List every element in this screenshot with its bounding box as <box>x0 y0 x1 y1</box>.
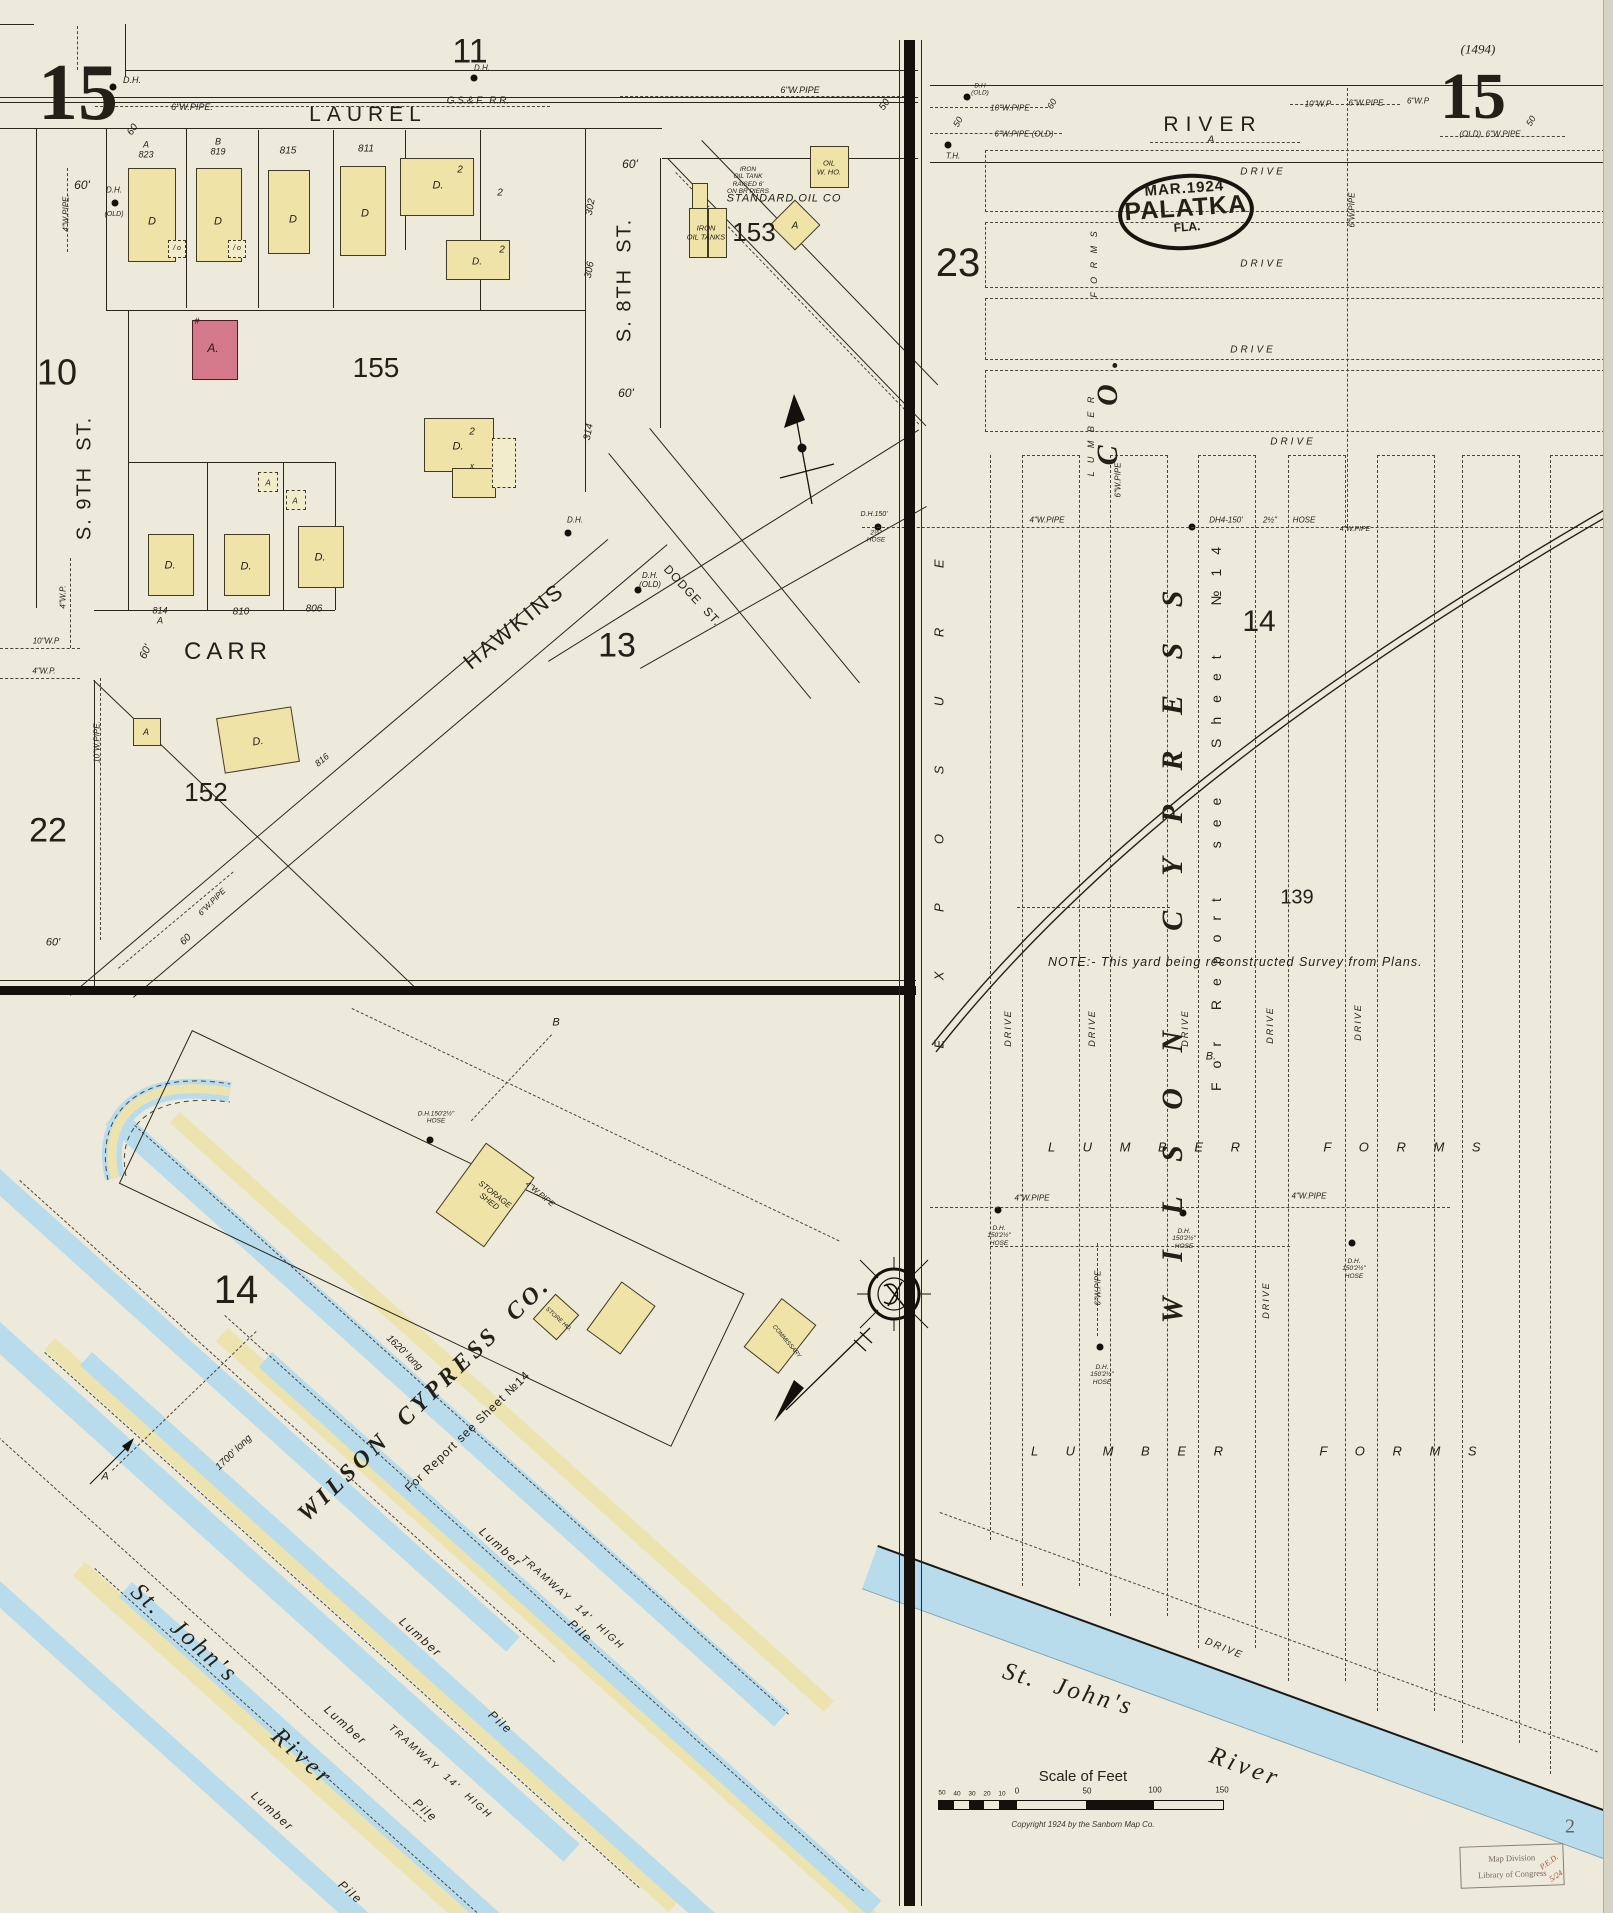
pipe-label: 6"W.PIPE (OLD) <box>995 129 1054 138</box>
street-line-s8th <box>660 158 661 428</box>
water-pipe <box>118 872 234 969</box>
street-s8th: S. 8TH ST. <box>614 218 637 342</box>
survey-line <box>471 1034 552 1121</box>
yard-row <box>985 150 1605 212</box>
house-number: 302 <box>584 198 598 216</box>
scale-segment <box>1016 1801 1086 1809</box>
double-hydrant <box>112 200 119 207</box>
width-marker: 50 <box>877 97 893 113</box>
scale-segment <box>939 1801 954 1809</box>
lumber-forms-vertical: F O R M S <box>1089 228 1099 297</box>
street-laurel: LAUREL <box>309 103 427 127</box>
standard-oil-label: STANDARD OIL CO <box>727 193 842 206</box>
scan-edge <box>1603 0 1613 1913</box>
panel-divider-line <box>0 980 916 981</box>
block-line <box>125 70 918 71</box>
point-marker: B. <box>1206 1051 1216 1064</box>
hydrant-label: D.H (OLD) <box>971 83 989 98</box>
pipe-label: 6"W.PIPE <box>1113 463 1122 498</box>
pile-outline <box>224 1315 864 1891</box>
lumber-forms-row: L U M B E R <box>1048 1141 1252 1156</box>
house-number: A 823 <box>138 140 153 161</box>
block-line <box>106 310 585 311</box>
building-label: A <box>265 478 270 487</box>
dimension: 1700' long <box>214 1433 255 1473</box>
scale-tick: 50 <box>938 1789 945 1796</box>
railroad-label: G.S.& F. R.R. <box>447 95 510 107</box>
dwelling-wing <box>452 468 496 498</box>
house-number: 314 <box>582 423 596 441</box>
water-pipe <box>100 678 101 940</box>
survey-line <box>1150 142 1300 143</box>
house-number: 810 <box>233 606 250 618</box>
hydrant-label: T.H. <box>946 151 960 160</box>
panel-divider-line <box>921 40 922 1906</box>
pipe-label: (OLD) 6"W.PIPE <box>1459 129 1520 138</box>
width-marker: 50 <box>951 115 965 129</box>
house-number: 815 <box>280 145 297 157</box>
pipe-label: 4"W.P. <box>32 666 55 675</box>
lumber-forms-row: L U M B E R <box>1031 1445 1235 1460</box>
scale-tick: 30 <box>968 1790 975 1797</box>
water-pipe <box>620 96 915 97</box>
north-arrow-icon <box>778 392 842 512</box>
hydrant-label: D.H.150' <box>860 511 887 519</box>
pipe-label: 4"W.PIPE <box>1292 1191 1327 1200</box>
sheet-number-left: 15 <box>38 47 118 139</box>
scale-segment <box>999 1801 1016 1809</box>
building-label: D. <box>252 735 265 749</box>
drive-label: DRIVE <box>1087 1009 1097 1047</box>
pipe-label: 10"W.PIPE <box>990 103 1029 112</box>
outbuilding-label: / o <box>173 245 181 253</box>
hydrant-label: D.H. (OLD) <box>639 571 661 589</box>
yard-row <box>985 298 1605 360</box>
pipe-label: 6"W.P <box>1407 96 1429 105</box>
pipe-label: 6"W.PIPE <box>780 85 819 95</box>
lot-line <box>207 462 208 610</box>
hydrant-label: D.H. 150'2½" HOSE <box>1172 1228 1195 1250</box>
block-number-14-left: 14 <box>214 1267 259 1313</box>
street-dodge: DODGE ST. <box>660 563 723 629</box>
lumber-forms-row: F O R M S <box>1323 1141 1492 1156</box>
block-number-22: 22 <box>29 811 67 850</box>
water-pipe <box>930 107 1048 108</box>
width-marker: 50 <box>1524 114 1538 128</box>
test-hole <box>945 142 952 149</box>
reconstruction-note: NOTE:- This yard being reconstructed Sur… <box>1048 955 1498 969</box>
block-line <box>662 158 918 159</box>
lot-line <box>283 462 284 610</box>
scale-tick: 20 <box>983 1790 990 1797</box>
block-line <box>94 610 335 611</box>
double-hydrant <box>1097 1344 1104 1351</box>
lot-line <box>258 130 259 308</box>
building-label: D. <box>472 256 482 268</box>
pipe-label: 4"W.P. <box>58 585 67 608</box>
pipe-label: 6"W.PIPE <box>1349 98 1384 107</box>
house-number: 806 <box>306 603 323 615</box>
drive-label: DRIVE <box>1353 1003 1363 1041</box>
block-number-13: 13 <box>598 626 636 665</box>
building-label: 2 <box>469 426 475 438</box>
scale-segment <box>984 1801 999 1809</box>
pipe-label: 6"W.PIPE <box>1093 1271 1102 1306</box>
railroad-curve <box>930 470 1613 1070</box>
drive-label: DRIVE <box>1230 344 1276 356</box>
width-marker: 60' <box>622 158 638 172</box>
water-pipe <box>0 678 80 679</box>
page-number: 2 <box>1565 1816 1575 1839</box>
pipe-label: 6"W.PIPE. <box>171 102 213 112</box>
yard-line <box>990 1246 1290 1247</box>
outbuilding-label: / o <box>233 245 241 253</box>
oil-tanks-label: IRON OIL TANKS <box>687 224 726 241</box>
porch <box>492 438 516 488</box>
water-pipe <box>70 558 71 648</box>
oil-tank-note: IRON OIL TANK RAISED 6' ON BR PIERS <box>727 166 769 196</box>
width-marker: 60' <box>46 937 60 950</box>
hydrant-label: D.H. 150'2½" HOSE <box>987 1225 1010 1247</box>
see-report-vertical: For Report see Sheet №14 <box>1208 533 1224 1091</box>
flag-mark: # <box>194 316 199 326</box>
panel-divider-line <box>899 40 900 1906</box>
drive-label: DRIVE <box>1240 258 1286 270</box>
width-marker: 60' <box>74 179 90 193</box>
water-pipe <box>0 648 80 649</box>
pile-arrow-icon <box>82 1432 142 1492</box>
building-label: D. <box>241 561 252 574</box>
building-label: D <box>214 216 222 229</box>
drive-label: DRIVE <box>1261 1281 1271 1319</box>
copyright-line: Copyright 1924 by the Sanborn Map Co. <box>948 1820 1218 1829</box>
building-label: A. <box>207 342 218 356</box>
dwelling <box>268 170 310 254</box>
block-line <box>128 310 129 610</box>
x-mark: x <box>470 461 474 470</box>
block-number-23: 23 <box>936 240 981 286</box>
lumber-pile-label: Pile <box>410 1797 440 1826</box>
scale-tick: 40 <box>953 1790 960 1797</box>
lumber-pile-label: Lumber <box>321 1703 369 1749</box>
house-number: 306 <box>583 261 597 279</box>
story-count: 2 <box>497 187 503 199</box>
scale-tick: 10 <box>998 1790 1005 1797</box>
hydrant-label: HOSE <box>1293 515 1316 524</box>
street-hawkins: HAWKINS <box>458 578 569 675</box>
point-marker: A <box>1208 134 1215 146</box>
story-count: 2 <box>457 164 463 176</box>
hydrant-label: D.H. <box>474 63 490 72</box>
building-label: D. <box>315 552 326 565</box>
building-label: A <box>292 496 297 505</box>
pipe-label: 6"W.PIPE <box>1347 193 1356 228</box>
pipe-label: 4"W.PIPE <box>1015 1193 1050 1202</box>
building-label: A <box>792 220 799 232</box>
house-number: 814 A <box>152 606 167 627</box>
width-marker: 60' <box>137 643 155 661</box>
hydrant-label: D.H. <box>567 515 583 524</box>
block-number-152: 152 <box>184 778 227 808</box>
double-hydrant <box>1349 1240 1356 1247</box>
neatline <box>0 24 34 25</box>
street-line-hawkins <box>133 544 668 998</box>
hydrant-label: D.H. 150'2½" HOSE <box>1090 1364 1113 1386</box>
building-label: D <box>361 208 369 221</box>
street-carr: CARR <box>184 638 272 666</box>
double-hydrant <box>565 530 572 537</box>
lumber-forms-row: F O R M S <box>1319 1445 1488 1460</box>
hydrant-label: (OLD) <box>104 211 123 219</box>
building-label: D <box>289 214 297 227</box>
exposure-vertical: E X P O S U R E <box>933 531 948 1048</box>
building-label: D. <box>453 441 464 454</box>
scale-segment <box>969 1801 984 1809</box>
scale-segment <box>1154 1801 1222 1809</box>
building-label: OIL W. HO. <box>817 159 841 176</box>
width-marker: 60 <box>1045 97 1059 111</box>
scale-bar <box>938 1800 1224 1810</box>
pipe-label: 4"W.PIPE. <box>61 194 70 231</box>
water-pipe <box>1347 88 1348 527</box>
yard-row <box>985 222 1605 288</box>
point-marker: A <box>101 1471 108 1484</box>
scale-segment <box>1086 1801 1154 1809</box>
scale-tick: 150 <box>1215 1785 1228 1794</box>
drive-label: DRIVE <box>1240 166 1286 178</box>
house-number: 816 <box>313 751 331 769</box>
house-number: 811 <box>358 143 374 155</box>
pipe-label: 4"W.PIPE <box>1340 526 1371 534</box>
plate-ref: (1494) <box>1461 43 1496 58</box>
hydrant-label: DH4-150' <box>1209 515 1243 524</box>
building-label: D. <box>165 560 176 573</box>
drive-label: DRIVE <box>1180 1009 1190 1047</box>
lot-line <box>186 128 187 308</box>
double-hydrant <box>471 75 478 82</box>
block-number-14-right: 14 <box>1242 605 1275 640</box>
sheet-number-right: 15 <box>1440 59 1506 135</box>
hydrant-label: D.H. <box>123 75 141 85</box>
drive-label: DRIVE <box>1003 1009 1013 1047</box>
block-number-153: 153 <box>732 218 775 248</box>
scale-tick: 0 <box>1015 1786 1019 1795</box>
pipe-label: 6"W.PIPE <box>196 886 227 917</box>
point-marker: B <box>552 1017 559 1030</box>
hydrant-label: D.H. 150'2½" HOSE <box>1342 1258 1365 1280</box>
scale-tick: 100 <box>1148 1785 1161 1794</box>
scale-title: Scale of Feet <box>948 1768 1218 1785</box>
pipe-label: 10"W.P <box>33 636 60 645</box>
pipe-label: 10"W.P <box>1305 99 1332 108</box>
pipe-label: 4"W.PIPE <box>1030 515 1065 524</box>
building-label: A <box>143 727 149 737</box>
sanborn-map-sheet: MAR.1924 PALATKA FLA. NOTE:- This yard b… <box>0 0 1613 1913</box>
block-number-10: 10 <box>37 351 77 392</box>
wilson-cypress-co-vertical: C O. <box>1091 345 1126 466</box>
width-marker: 60 <box>125 122 141 138</box>
hydrant-label: D.H.150'2½" HOSE <box>418 1111 454 1126</box>
lot-line <box>333 130 334 308</box>
panel-divider-vertical <box>904 40 915 1906</box>
block-number-139: 139 <box>1280 887 1313 910</box>
double-hydrant <box>964 94 971 101</box>
wilson-cypress-co-vertical: W I L S O N C Y P R E S S <box>1156 577 1191 1324</box>
building-label: D <box>148 216 156 229</box>
drive-label: DRIVE <box>1270 436 1316 448</box>
scale-tick: 50 <box>1083 1786 1092 1795</box>
yard-row <box>985 370 1605 432</box>
width-marker: 60' <box>618 387 634 401</box>
drive-label: DRIVE <box>1265 1006 1275 1044</box>
street-s9th: S. 9TH ST. <box>74 416 97 540</box>
hydrant-label: 2½" HOSE <box>867 530 885 545</box>
house-number: B 819 <box>210 137 225 158</box>
story-count: 2 <box>499 244 505 256</box>
pipe-label: 10"W.PIPE. <box>92 721 101 763</box>
block-line <box>128 462 335 463</box>
hydrant-label: D.H. <box>106 185 122 194</box>
panel-divider-horizontal <box>0 986 916 995</box>
hydrant-label: 2½" <box>1263 515 1277 524</box>
street-line-river <box>930 85 1613 86</box>
building-label: D. <box>433 180 444 193</box>
block-number-155: 155 <box>353 352 400 384</box>
scale-segment <box>954 1801 969 1809</box>
lot-line <box>480 130 481 310</box>
